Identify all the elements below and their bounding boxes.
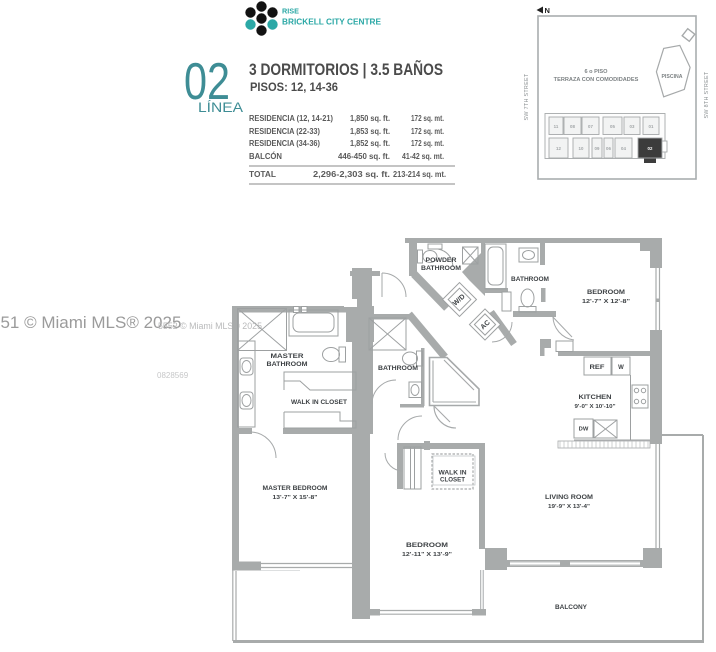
svg-text:9'-0" X 10'-10": 9'-0" X 10'-10" bbox=[575, 404, 616, 410]
svg-text:1,853 sq. ft.: 1,853 sq. ft. bbox=[350, 126, 390, 136]
svg-text:2,296-2,303 sq. ft.: 2,296-2,303 sq. ft. bbox=[313, 169, 390, 179]
svg-text:SW 7TH STREET: SW 7TH STREET bbox=[524, 73, 530, 120]
svg-text:W: W bbox=[618, 365, 624, 371]
svg-text:12: 12 bbox=[556, 146, 561, 151]
svg-text:CLOSET: CLOSET bbox=[440, 477, 465, 484]
svg-text:WALK IN CLOSET: WALK IN CLOSET bbox=[291, 399, 348, 406]
svg-text:06: 06 bbox=[606, 146, 611, 151]
svg-text:LIVING ROOM: LIVING ROOM bbox=[545, 494, 593, 501]
svg-text:01: 01 bbox=[649, 124, 654, 129]
svg-text:172 sq. mt.: 172 sq. mt. bbox=[411, 126, 444, 136]
svg-text:BATHROOM: BATHROOM bbox=[421, 265, 461, 272]
svg-text:RESIDENCIA (34-36): RESIDENCIA (34-36) bbox=[249, 138, 320, 148]
svg-text:REF: REF bbox=[590, 365, 605, 371]
svg-text:SW 8TH STREET: SW 8TH STREET bbox=[704, 71, 710, 118]
svg-text:0828569: 0828569 bbox=[157, 371, 189, 380]
svg-text:BEDROOM: BEDROOM bbox=[587, 289, 625, 296]
svg-text:DW: DW bbox=[579, 427, 589, 433]
svg-text:BALCÓN: BALCÓN bbox=[249, 150, 282, 161]
svg-text:451 © Miami MLS® 2025: 451 © Miami MLS® 2025 bbox=[0, 313, 181, 332]
svg-text:RESIDENCIA (12, 14-21): RESIDENCIA (12, 14-21) bbox=[249, 113, 333, 123]
svg-text:446-450 sq. ft.: 446-450 sq. ft. bbox=[338, 151, 390, 161]
svg-text:11: 11 bbox=[554, 124, 559, 129]
svg-text:N: N bbox=[545, 6, 550, 15]
svg-text:12'-7" X 12'-8": 12'-7" X 12'-8" bbox=[582, 299, 630, 305]
svg-text:MASTER BEDROOM: MASTER BEDROOM bbox=[263, 485, 328, 492]
svg-text:TOTAL: TOTAL bbox=[249, 169, 277, 179]
svg-text:09: 09 bbox=[595, 146, 600, 151]
svg-text:PISCINA: PISCINA bbox=[661, 74, 682, 80]
svg-text:13'-7" X 15'-8": 13'-7" X 15'-8" bbox=[273, 495, 318, 501]
svg-text:RESIDENCIA (22-33): RESIDENCIA (22-33) bbox=[249, 126, 320, 136]
svg-text:1,850 sq. ft.: 1,850 sq. ft. bbox=[350, 113, 390, 123]
svg-text:BRICKELL CITY CENTRE: BRICKELL CITY CENTRE bbox=[282, 17, 381, 27]
svg-text:BEDROOM: BEDROOM bbox=[406, 542, 448, 549]
svg-text:03: 03 bbox=[630, 124, 635, 129]
svg-text:172 sq. mt.: 172 sq. mt. bbox=[411, 113, 444, 123]
svg-text:04: 04 bbox=[621, 146, 626, 151]
svg-text:MASTER: MASTER bbox=[271, 353, 304, 360]
svg-text:19'-9" X 13'-4": 19'-9" X 13'-4" bbox=[548, 504, 590, 510]
svg-text:BALCONY: BALCONY bbox=[555, 604, 588, 611]
svg-text:12'-11" X 13'-9": 12'-11" X 13'-9" bbox=[402, 552, 452, 558]
svg-text:213-214 sq. mt.: 213-214 sq. mt. bbox=[393, 169, 446, 179]
svg-text:TERRAZA CON COMODIDADES: TERRAZA CON COMODIDADES bbox=[554, 77, 639, 83]
svg-text:6 o PISO: 6 o PISO bbox=[584, 69, 608, 75]
svg-text:POWDER: POWDER bbox=[426, 257, 457, 264]
svg-text:PISOS: 12, 14-36: PISOS: 12, 14-36 bbox=[250, 80, 338, 94]
svg-text:3 DORMITORIOS | 3.5 BAÑOS: 3 DORMITORIOS | 3.5 BAÑOS bbox=[249, 59, 443, 79]
svg-text:1,852 sq. ft.: 1,852 sq. ft. bbox=[350, 138, 390, 148]
svg-text:KITCHEN: KITCHEN bbox=[579, 394, 612, 401]
svg-text:41-42 sq. mt.: 41-42 sq. mt. bbox=[402, 151, 444, 161]
svg-text:07: 07 bbox=[588, 124, 593, 129]
svg-text:05: 05 bbox=[610, 124, 615, 129]
svg-text:10: 10 bbox=[579, 146, 584, 151]
svg-text:172 sq. mt.: 172 sq. mt. bbox=[411, 138, 444, 148]
svg-text:WALK IN: WALK IN bbox=[439, 470, 468, 477]
svg-text:LÍNEA: LÍNEA bbox=[198, 100, 243, 115]
svg-text:BATHROOM: BATHROOM bbox=[511, 276, 549, 283]
svg-text:5552 © Miami MLS® 2025: 5552 © Miami MLS® 2025 bbox=[158, 321, 262, 332]
svg-text:02: 02 bbox=[648, 146, 653, 151]
svg-text:BATHROOM: BATHROOM bbox=[378, 365, 418, 372]
svg-text:08: 08 bbox=[570, 124, 575, 129]
svg-text:RISE: RISE bbox=[282, 9, 299, 16]
svg-text:BATHROOM: BATHROOM bbox=[267, 361, 308, 368]
